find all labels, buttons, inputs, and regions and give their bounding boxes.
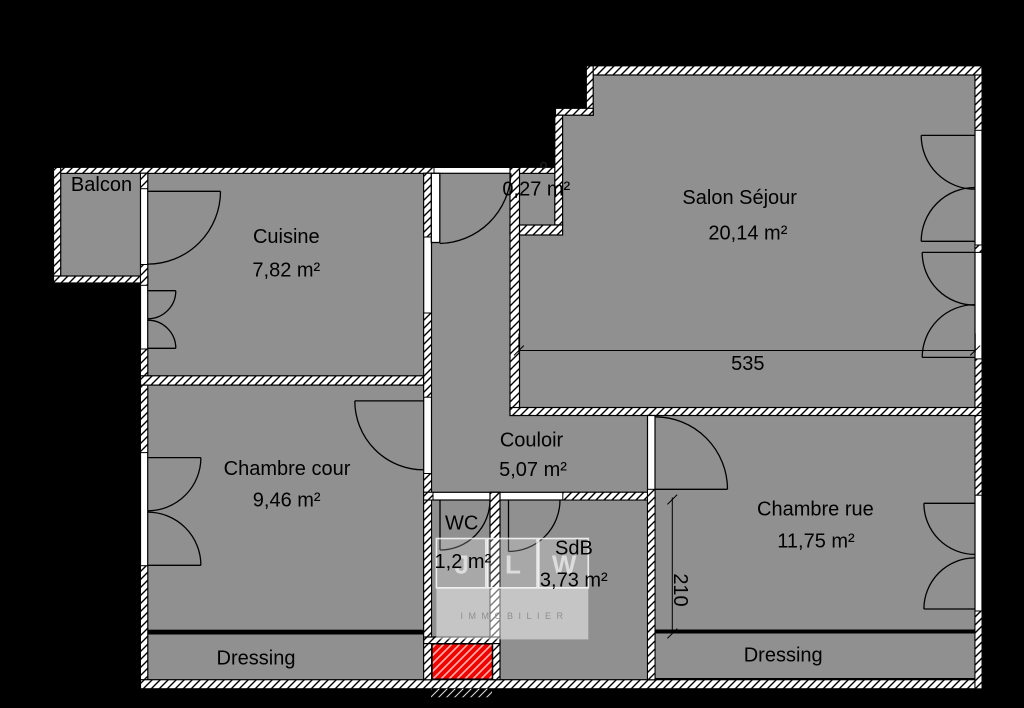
svg-text:20,14 m²: 20,14 m² <box>708 223 787 245</box>
svg-text:9,46 m²: 9,46 m² <box>253 490 321 512</box>
svg-text:210: 210 <box>669 573 691 606</box>
svg-text:Chambre cour: Chambre cour <box>224 458 351 480</box>
svg-text:WC: WC <box>445 513 478 535</box>
svg-text:Dressing: Dressing <box>217 647 296 669</box>
svg-text:Balcon: Balcon <box>71 174 132 196</box>
svg-text:1,2 m²: 1,2 m² <box>435 551 492 573</box>
svg-text:7,82 m²: 7,82 m² <box>252 260 320 282</box>
svg-text:3,73 m²: 3,73 m² <box>540 570 608 592</box>
svg-text:Chambre rue: Chambre rue <box>757 499 874 521</box>
svg-text:0,27 m²: 0,27 m² <box>502 179 570 201</box>
svg-text:Couloir: Couloir <box>500 430 564 452</box>
svg-text:Dressing: Dressing <box>744 644 823 666</box>
svg-text:11,75 m²: 11,75 m² <box>777 531 855 553</box>
svg-text:5,07 m²: 5,07 m² <box>499 459 567 481</box>
svg-text:SdB: SdB <box>555 538 593 560</box>
svg-text:Salon Séjour: Salon Séjour <box>682 187 797 209</box>
svg-text:IMMOBILIER: IMMOBILIER <box>460 611 568 621</box>
svg-text:535: 535 <box>731 353 764 375</box>
svg-text:Cuisine: Cuisine <box>253 226 320 248</box>
svg-text:L: L <box>505 550 521 580</box>
